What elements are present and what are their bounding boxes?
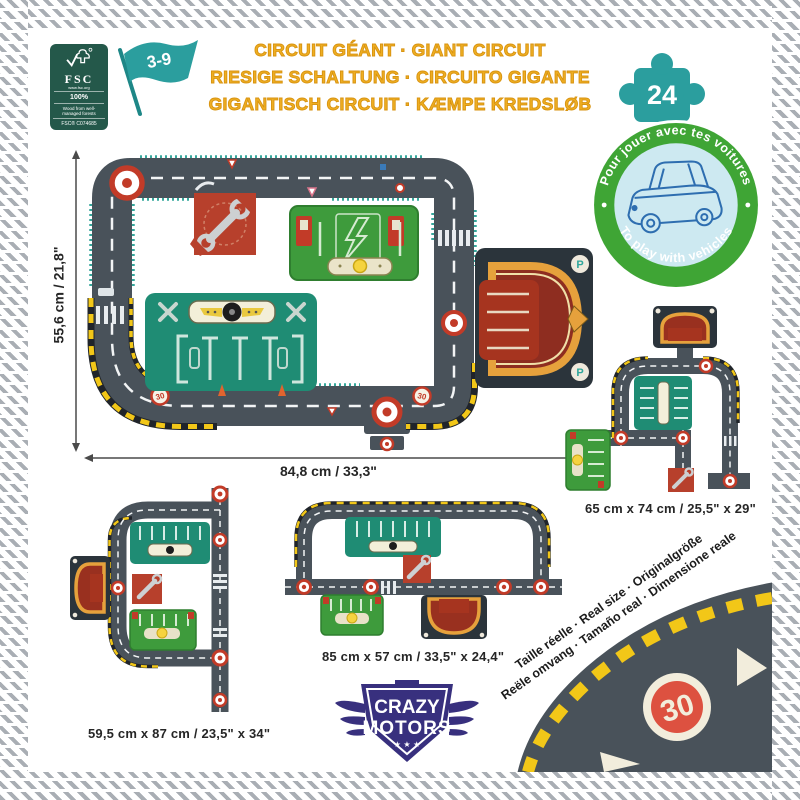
variant-right-dimensions: 65 cm x 74 cm / 25,5" x 29": [585, 501, 756, 516]
border-pattern-bottom: [0, 772, 800, 800]
fsc-claim: Wood from well-managed forests: [54, 103, 104, 116]
variant-left-dimensions: 59,5 cm x 87 cm / 23,5" x 34": [88, 726, 270, 741]
workshop-piece: [668, 468, 694, 492]
brand-name-bottom: MOTORS: [362, 718, 451, 739]
variant-circuit-right: [558, 298, 793, 498]
brand-stars: ★ ★ ★: [394, 740, 421, 749]
parking-piece: [653, 306, 717, 348]
svg-text:P: P: [576, 259, 583, 271]
height-dimension-label: 55,6 cm / 21,8": [51, 223, 67, 368]
garage-piece: [634, 376, 692, 430]
charging-station-piece: [566, 430, 610, 490]
workshop-piece: [190, 193, 256, 256]
product-title: CIRCUIT GÉANT · GIANT CIRCUIT RIESIGE SC…: [190, 37, 610, 118]
box-back-panel: FSC www.fsc.org 100% Wood from well-mana…: [0, 0, 800, 800]
charging-station-piece: [290, 206, 418, 280]
main-circuit-layout: 30 30: [82, 138, 602, 463]
garage-piece: [130, 522, 210, 564]
bus-marking: [98, 288, 114, 296]
border-pattern-top: [0, 0, 800, 28]
charging-station-piece: [130, 610, 196, 650]
speed-sign-30: 30: [643, 673, 711, 741]
piece-count-text: 24: [647, 80, 677, 110]
variant-center-dimensions: 85 cm x 57 cm / 33,5" x 24,4": [322, 649, 504, 664]
fsc-tree-icon: [64, 47, 94, 69]
play-badge: Pour jouer avec tes voitures To play wit…: [590, 119, 762, 291]
width-dimension-label: 84,8 cm / 33,3": [280, 463, 377, 479]
variant-circuit-left: [68, 478, 273, 720]
fsc-wordmark: FSC: [50, 74, 108, 85]
fsc-license: FSC® C074685: [53, 118, 105, 128]
title-line-2: RIESIGE SCHALTUNG · CIRCUITO GIGANTE: [190, 64, 610, 91]
border-pattern-left: [0, 0, 28, 800]
garage-piece: [345, 517, 441, 557]
parking-piece: [70, 556, 110, 620]
garage-piece: [145, 293, 317, 396]
charging-station-piece: [321, 595, 383, 635]
fsc-site: www.fsc.org: [50, 85, 108, 90]
height-dimension-line: [68, 150, 84, 452]
brand-logo: CRAZY MOTORS ★ ★ ★: [333, 672, 481, 768]
parking-piece: [421, 595, 487, 639]
title-line-1: CIRCUIT GÉANT · GIANT CIRCUIT: [190, 37, 610, 64]
brand-name-top: CRAZY: [374, 697, 440, 718]
fsc-label: FSC www.fsc.org 100% Wood from well-mana…: [50, 44, 108, 130]
fsc-percent: 100%: [54, 91, 104, 102]
age-flag: 3-9: [108, 38, 200, 118]
title-line-3: GIGANTISCH CIRCUIT · KÆMPE KREDSLØB: [190, 91, 610, 118]
workshop-piece: [132, 574, 162, 604]
workshop-piece: [403, 555, 431, 583]
